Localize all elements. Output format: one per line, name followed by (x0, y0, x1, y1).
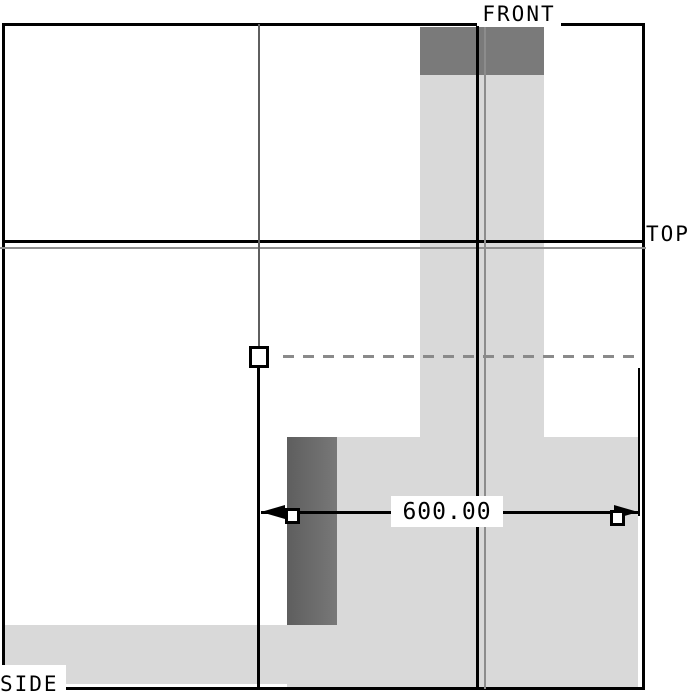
view-label-top[interactable]: TOP (646, 219, 694, 245)
cad-drawing-viewport: 600.00 FRONT TOP SIDE (0, 0, 694, 696)
hidden-reference-dashed-line (283, 355, 640, 358)
extension-line-right (638, 368, 640, 516)
view-label-front[interactable]: FRONT (477, 0, 561, 26)
dimension-arrow-left-icon (261, 505, 285, 519)
drag-handle-square[interactable] (249, 346, 269, 368)
extension-line-left-lower (257, 368, 260, 690)
dimension-hook-right-icon[interactable] (610, 510, 625, 526)
extension-line-left-upper (258, 24, 260, 347)
view-divider-line (2, 240, 643, 243)
view-divider-shadow-line (0, 247, 646, 249)
dimension-hook-left-icon[interactable] (285, 508, 300, 524)
dimension-value[interactable]: 600.00 (391, 496, 503, 527)
view-label-side[interactable]: SIDE (0, 665, 66, 695)
vertical-shadow-line (484, 27, 486, 689)
